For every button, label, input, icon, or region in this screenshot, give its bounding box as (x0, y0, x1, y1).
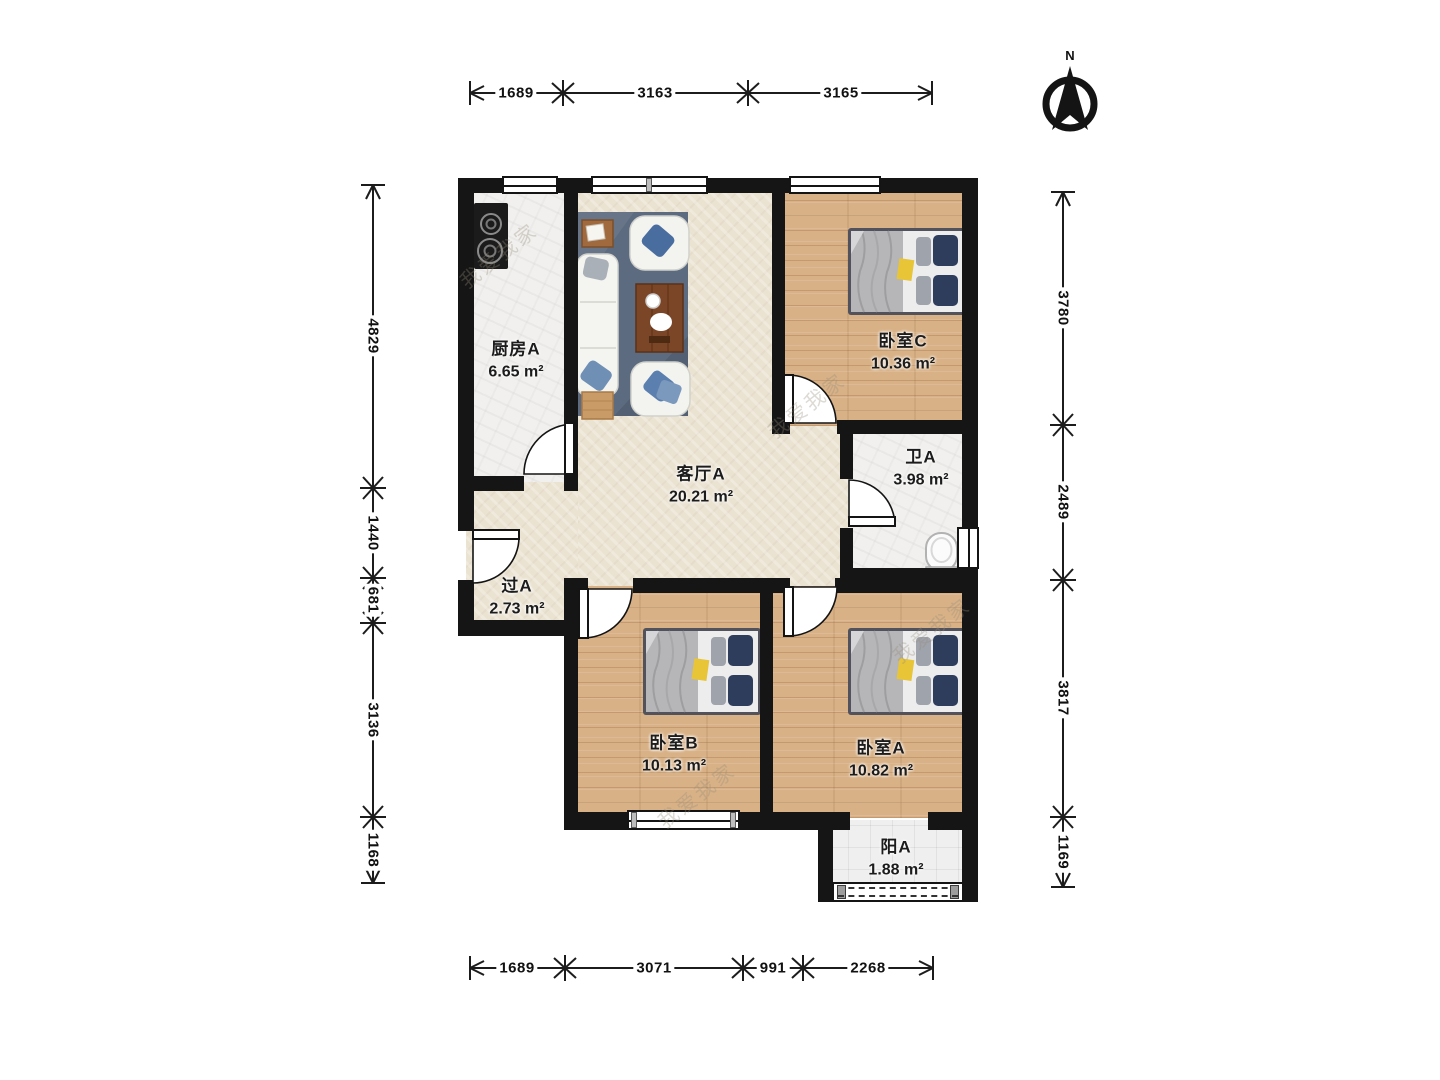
railing-post (950, 885, 959, 899)
dim-right-4: 1169 (1055, 832, 1072, 873)
floor-plan: 厨房A 6.65 m² 客厅A 20.21 m² 卧室C 10.36 m² 卫A… (0, 0, 1440, 1080)
wall-hall-bottom (458, 620, 578, 636)
dimension-line-right (1048, 177, 1078, 902)
bathroom-door-icon (845, 476, 899, 530)
wall-bedroom-a-bottom (760, 812, 850, 830)
dim-left-3: 681 (365, 584, 382, 617)
wall-balcony-left (818, 820, 833, 902)
wall-bedroom-b-left (564, 578, 578, 830)
dim-right-3: 3817 (1055, 677, 1072, 718)
dim-top-1: 1689 (495, 85, 536, 102)
bedroom-c-door-icon (783, 372, 841, 428)
wall-bedroom-divider (760, 578, 773, 830)
living-window (591, 176, 708, 194)
stove-icon (474, 203, 510, 271)
bedroom-a-label: 卧室A 10.82 m² (849, 734, 913, 781)
room-name: 卫A (893, 443, 948, 468)
dim-bottom-2: 3071 (633, 960, 674, 977)
dim-bottom-3: 991 (757, 960, 790, 977)
room-area: 2.73 m² (489, 601, 544, 619)
dim-top-2: 3163 (634, 85, 675, 102)
room-area: 20.21 m² (669, 489, 733, 507)
dim-left-1: 4829 (365, 315, 382, 356)
dim-left-2: 1440 (365, 512, 382, 553)
room-name: 厨房A (488, 335, 543, 360)
railing-post (837, 885, 846, 899)
room-name: 阳A (868, 833, 923, 858)
bed-b-icon (643, 628, 761, 715)
wall-bath-left-upper (840, 420, 853, 479)
room-area: 10.82 m² (849, 763, 913, 781)
kitchen-door-icon (519, 419, 579, 479)
room-name: 卧室A (849, 734, 913, 759)
wall-bedrooms-top-c (835, 578, 978, 593)
window-mullion (730, 812, 736, 828)
room-area: 10.36 m² (871, 356, 935, 374)
dim-left-4: 3136 (365, 699, 382, 740)
balcony-railing (832, 882, 964, 902)
bedroom-b-label: 卧室B 10.13 m² (642, 729, 706, 776)
hallway-label: 过A 2.73 m² (489, 572, 544, 619)
dim-top-3: 3165 (820, 85, 861, 102)
bathroom-window (957, 527, 979, 569)
wall-bedroom-c-bottom-right (837, 420, 978, 434)
room-area: 3.98 m² (893, 472, 948, 490)
room-area: 10.13 m² (642, 758, 706, 776)
compass: N (1032, 48, 1108, 140)
dim-right-1: 3780 (1055, 287, 1072, 328)
dim-bottom-1: 1689 (496, 960, 537, 977)
window-mullion (646, 178, 652, 192)
bedroom-b-door-icon (578, 585, 638, 643)
bathroom-label: 卫A 3.98 m² (893, 443, 948, 490)
dim-left-5: 1168 (365, 830, 382, 871)
sofa-set-icon (574, 206, 704, 422)
room-name: 客厅A (669, 460, 733, 485)
bedroom-c-window (789, 176, 881, 194)
kitchen-label: 厨房A 6.65 m² (488, 335, 543, 382)
room-name: 过A (489, 572, 544, 597)
living-label: 客厅A 20.21 m² (669, 460, 733, 507)
room-area: 6.65 m² (488, 364, 543, 382)
north-arrow-icon (1032, 60, 1108, 140)
kitchen-window (502, 176, 558, 194)
bedroom-c-label: 卧室C 10.36 m² (871, 327, 935, 374)
window-mullion (631, 812, 637, 828)
room-name: 卧室C (871, 327, 935, 352)
bedroom-b-window (627, 810, 740, 830)
dim-bottom-4: 2268 (847, 960, 888, 977)
bedroom-a-door-icon (783, 583, 843, 641)
bed-a-icon (848, 628, 966, 715)
dim-right-2: 2489 (1055, 481, 1072, 522)
room-area: 1.88 m² (868, 862, 923, 880)
wall-kitchen-bottom (458, 476, 524, 491)
bed-c-icon (848, 228, 966, 315)
balcony-label: 阳A 1.88 m² (868, 833, 923, 880)
room-name: 卧室B (642, 729, 706, 754)
